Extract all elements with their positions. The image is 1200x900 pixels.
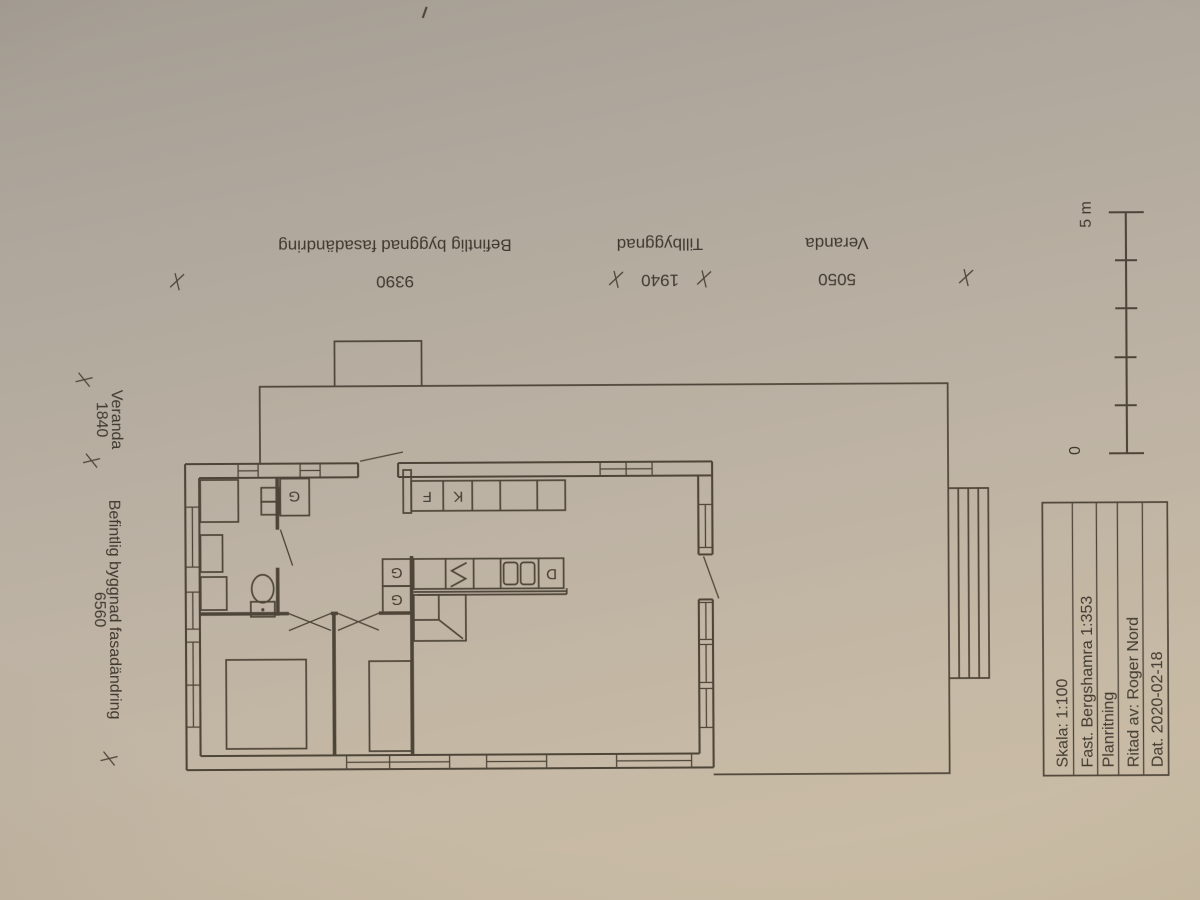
sink-basin-icon <box>521 562 535 584</box>
bed-left <box>226 660 306 749</box>
scale-max-label: 5 m <box>1078 201 1095 228</box>
title-property: Fast. Bergshamra 1:353 <box>1079 596 1097 768</box>
scale-bar-line <box>1108 212 1145 453</box>
stray-mark <box>423 7 427 18</box>
wall-top <box>185 461 712 478</box>
dim-left-label-building: Befintlig byggnad fasadändring <box>105 500 123 720</box>
dim-top-value-3: 5050 <box>818 270 856 289</box>
bathroom-door-leaf <box>280 530 292 566</box>
washer-icon <box>201 577 227 610</box>
freezer-label: F <box>423 488 432 505</box>
toilet-icon <box>251 575 275 617</box>
dim-top-value-1: 9390 <box>376 272 414 291</box>
bedroom2-door-swing <box>338 613 379 630</box>
title-author: Ritad av: Roger Nord <box>1125 617 1143 767</box>
bedroom1-door-swing <box>289 613 331 630</box>
dim-top-label-3: Veranda <box>805 234 869 253</box>
kitchen-island <box>414 558 567 595</box>
veranda-steps-icon <box>948 488 989 678</box>
sink-basin-icon <box>504 562 518 584</box>
dim-left-label-veranda: Veranda <box>108 390 125 450</box>
dimension-top: Befintlig byggnad fasadändring 9390 Till… <box>170 233 973 292</box>
closet-label: G <box>391 591 403 608</box>
title-block: Skala: 1:100 Fast. Bergshamra 1:353 Plan… <box>1042 502 1168 776</box>
corner-stairs-icon <box>414 595 466 641</box>
scale-bar: 5 m 0 <box>1066 201 1145 455</box>
closet-label: G <box>288 488 300 505</box>
wall-bedrooms <box>200 613 414 614</box>
exterior-walls <box>185 461 714 770</box>
dim-left-value-veranda: 1840 <box>93 402 110 438</box>
photographed-floor-plan: { "colors": { "ink": "#453c30", "paper_t… <box>0 0 1200 900</box>
wall-bathroom <box>277 478 278 616</box>
dim-top-value-2: 1940 <box>641 271 679 290</box>
entry-door-leaf <box>360 452 403 461</box>
bed-right <box>369 661 411 751</box>
veranda-door-leaf <box>704 556 719 598</box>
wall-bedroom-divider <box>334 613 335 755</box>
closet-label: G <box>391 564 403 581</box>
shower-icon <box>200 480 238 522</box>
title-drawing-type: Planritning <box>1100 692 1117 768</box>
dimension-left: 1840 Veranda 6560 Befintlig byggnad fasa… <box>76 372 127 765</box>
entry-porch <box>334 341 421 386</box>
bathroom-cabinet-icon <box>200 535 222 572</box>
stove-icon <box>451 563 467 587</box>
fixtures <box>200 469 567 752</box>
window-icons <box>185 461 714 770</box>
dim-top-label-2: Tillbyggnad <box>617 234 703 253</box>
dim-top-label-1: Befintlig byggnad fasadändring <box>278 235 512 255</box>
dishwasher-label: D <box>546 565 557 582</box>
title-scale: Skala: 1:100 <box>1054 678 1071 767</box>
scale-min-label: 0 <box>1067 446 1084 455</box>
dim-left-value-building: 6560 <box>91 592 108 628</box>
title-date: Dat. 2020-02-18 <box>1149 651 1167 767</box>
blueprint-drawing: Befintlig byggnad fasadändring 9390 Till… <box>0 0 1200 900</box>
fridge-label: K <box>453 488 463 505</box>
plan-letter-labels: G G G F K D <box>288 486 557 608</box>
